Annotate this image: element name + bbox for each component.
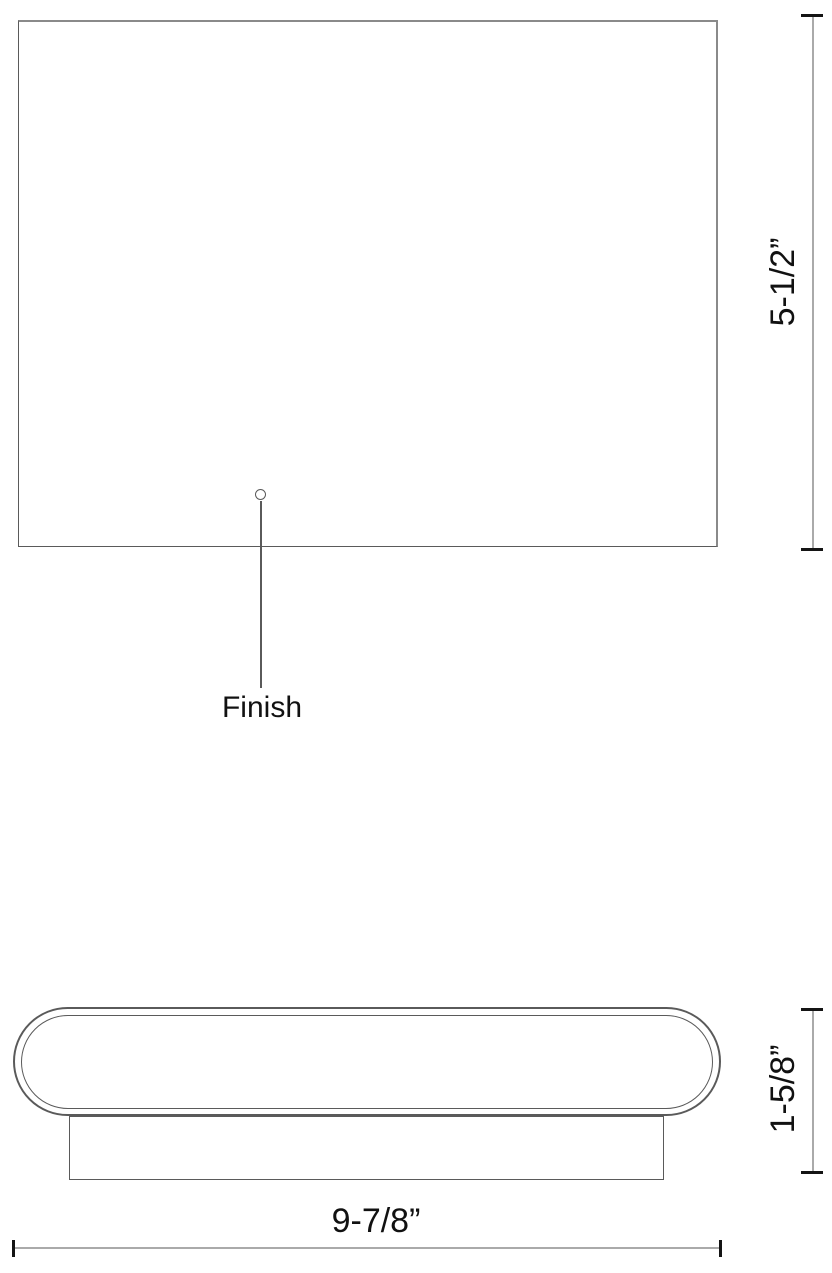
dimension-line <box>13 1247 721 1249</box>
fixture-front-outline <box>18 20 718 547</box>
finish-label: Finish <box>222 693 302 723</box>
fixture-plan-outline-inner <box>21 1015 713 1109</box>
plan-width-dimension-label: 9-7/8” <box>332 1204 421 1238</box>
dimension-tick-left <box>12 1240 15 1257</box>
dimension-line <box>812 16 814 550</box>
callout-circle-icon <box>255 489 266 500</box>
dimension-tick-bottom <box>801 548 823 551</box>
spec-drawing-canvas: Finish 5-1/2” 1-5/8” 9-7/8” <box>0 0 832 1273</box>
dimension-tick-top <box>801 1008 823 1011</box>
dimension-line <box>812 1010 814 1173</box>
dimension-tick-bottom <box>801 1171 823 1174</box>
dimension-tick-right <box>719 1240 722 1257</box>
dimension-tick-top <box>801 14 823 17</box>
front-height-dimension-label: 5-1/2” <box>766 238 800 327</box>
fixture-backplate-outline <box>69 1116 664 1180</box>
callout-leader-line <box>260 501 262 688</box>
plan-depth-dimension-label: 1-5/8” <box>766 1045 800 1134</box>
